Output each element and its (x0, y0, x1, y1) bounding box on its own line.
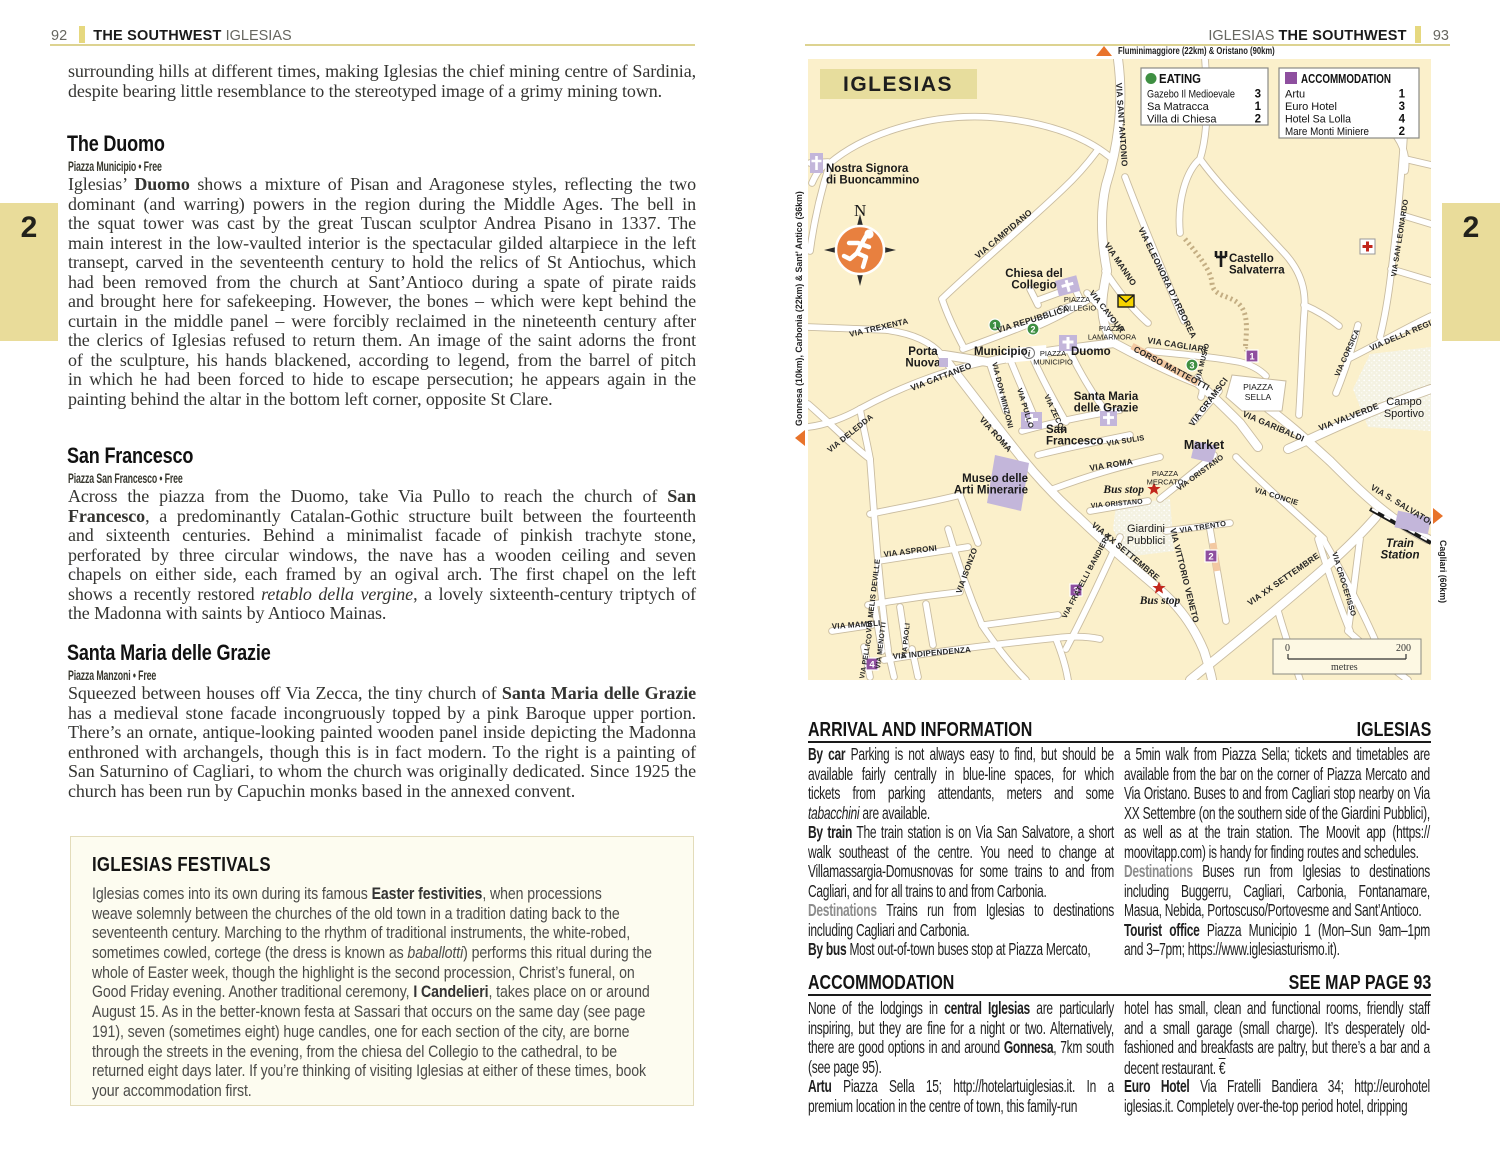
svg-text:Mare Monti Miniere: Mare Monti Miniere (1285, 126, 1369, 138)
svg-text:Market: Market (1184, 438, 1225, 452)
svg-text:2: 2 (1255, 114, 1261, 126)
svg-text:Nuova: Nuova (905, 358, 941, 370)
svg-text:LAMARMORA: LAMARMORA (1088, 333, 1136, 342)
svg-text:di Buoncammino: di Buoncammino (826, 175, 919, 187)
svg-text:Salvaterra: Salvaterra (1229, 265, 1285, 277)
svg-text:Nostra Signora: Nostra Signora (826, 163, 909, 175)
svg-text:IGLESIAS: IGLESIAS (843, 73, 953, 96)
svg-text:1: 1 (1399, 89, 1406, 101)
svg-text:2: 2 (1399, 126, 1405, 138)
svg-text:Station: Station (1381, 550, 1420, 562)
svg-text:3: 3 (1189, 360, 1194, 370)
svg-text:Train: Train (1386, 538, 1414, 550)
svg-text:EATING: EATING (1159, 72, 1201, 86)
svg-text:i: i (1028, 349, 1031, 359)
svg-text:Campo: Campo (1386, 396, 1421, 408)
svg-text:Pubblici: Pubblici (1127, 535, 1166, 547)
svg-text:Artu: Artu (1285, 89, 1305, 101)
svg-text:Arti Minerarie: Arti Minerarie (954, 485, 1028, 497)
svg-text:4: 4 (1399, 114, 1406, 126)
svg-text:Sa Matracca: Sa Matracca (1147, 101, 1210, 113)
svg-text:Bus stop: Bus stop (1102, 484, 1144, 496)
svg-text:Municipio: Municipio (974, 346, 1028, 358)
svg-text:Francesco: Francesco (1046, 436, 1104, 448)
svg-text:Duomo: Duomo (1071, 346, 1111, 358)
svg-text:Villa di Chiesa: Villa di Chiesa (1147, 114, 1217, 126)
svg-text:Gazebo Il Medioevale: Gazebo Il Medioevale (1147, 89, 1235, 101)
svg-text:1: 1 (1249, 352, 1255, 363)
svg-text:2: 2 (1030, 324, 1035, 334)
svg-text:0: 0 (1285, 643, 1290, 654)
svg-text:Sportivo: Sportivo (1384, 408, 1424, 420)
svg-text:Museo delle: Museo delle (962, 473, 1028, 485)
svg-text:Bus stop: Bus stop (1139, 595, 1181, 607)
svg-text:Chiesa del: Chiesa del (1005, 268, 1063, 280)
svg-text:PIAZZA: PIAZZA (1243, 382, 1273, 392)
svg-text:Hotel Sa Lolla: Hotel Sa Lolla (1285, 114, 1352, 126)
svg-text:SELLA: SELLA (1245, 392, 1272, 402)
svg-text:Giardini: Giardini (1127, 523, 1165, 535)
svg-text:2: 2 (1208, 552, 1213, 563)
svg-text:Euro Hotel: Euro Hotel (1285, 101, 1337, 113)
svg-text:Collegio: Collegio (1011, 280, 1056, 292)
svg-text:MUNICIPIO: MUNICIPIO (1033, 358, 1073, 367)
svg-text:Porta: Porta (908, 346, 938, 358)
svg-text:ACCOMMODATION: ACCOMMODATION (1301, 72, 1391, 86)
svg-text:200: 200 (1396, 643, 1411, 654)
svg-text:Castello: Castello (1229, 253, 1274, 265)
svg-text:metres: metres (1331, 662, 1358, 673)
svg-text:delle Grazie: delle Grazie (1074, 403, 1139, 415)
svg-text:3: 3 (1255, 89, 1261, 101)
svg-text:Santa Maria: Santa Maria (1074, 391, 1139, 403)
svg-text:N: N (854, 201, 866, 220)
svg-text:1: 1 (1255, 101, 1262, 113)
svg-text:3: 3 (1399, 101, 1405, 113)
